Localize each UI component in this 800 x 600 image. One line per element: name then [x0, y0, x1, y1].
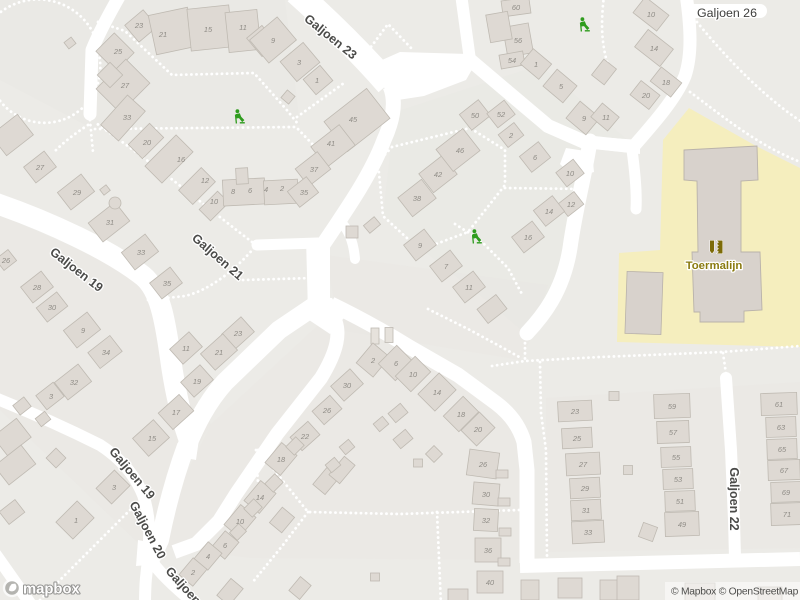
svg-text:1: 1: [315, 76, 319, 85]
svg-text:14: 14: [256, 493, 264, 502]
svg-text:19: 19: [193, 377, 201, 386]
svg-text:16: 16: [177, 155, 186, 164]
svg-text:25: 25: [572, 434, 582, 443]
svg-text:32: 32: [482, 516, 490, 525]
svg-text:31: 31: [106, 218, 114, 227]
svg-text:14: 14: [650, 44, 658, 53]
svg-text:11: 11: [602, 113, 610, 122]
svg-text:60: 60: [512, 3, 521, 12]
svg-text:29: 29: [72, 188, 81, 197]
svg-text:41: 41: [327, 139, 335, 148]
svg-text:49: 49: [678, 520, 686, 529]
svg-text:52: 52: [497, 110, 505, 119]
svg-text:30: 30: [48, 303, 57, 312]
svg-text:26: 26: [478, 460, 488, 469]
svg-text:23: 23: [570, 407, 580, 416]
svg-text:20: 20: [142, 138, 152, 147]
svg-text:Toermalijn: Toermalijn: [686, 260, 743, 272]
svg-text:27: 27: [35, 163, 45, 172]
svg-text:10: 10: [236, 517, 245, 526]
svg-text:51: 51: [676, 497, 684, 506]
svg-text:69: 69: [782, 488, 790, 497]
svg-text:27: 27: [578, 460, 588, 469]
svg-text:4: 4: [264, 185, 268, 194]
svg-text:20: 20: [473, 425, 483, 434]
svg-text:56: 56: [514, 36, 523, 45]
svg-text:10: 10: [210, 197, 219, 206]
svg-text:35: 35: [163, 279, 172, 288]
svg-text:35: 35: [300, 188, 309, 197]
svg-text:23: 23: [134, 21, 144, 30]
svg-text:53: 53: [674, 475, 683, 484]
svg-text:2: 2: [279, 184, 284, 193]
svg-text:18: 18: [662, 78, 671, 87]
svg-text:40: 40: [486, 578, 495, 587]
svg-text:2: 2: [508, 131, 513, 140]
svg-text:26: 26: [322, 406, 332, 415]
svg-text:57: 57: [669, 428, 678, 437]
svg-text:1: 1: [74, 516, 78, 525]
svg-text:Galjoen 22: Galjoen 22: [727, 467, 741, 530]
svg-text:11: 11: [239, 23, 247, 32]
svg-text:63: 63: [777, 423, 786, 432]
svg-text:71: 71: [783, 510, 791, 519]
svg-text:14: 14: [433, 388, 441, 397]
svg-text:29: 29: [580, 484, 589, 493]
svg-text:27: 27: [120, 81, 130, 90]
svg-text:4: 4: [206, 552, 210, 561]
svg-text:2: 2: [190, 568, 195, 577]
svg-text:38: 38: [413, 194, 422, 203]
svg-text:21: 21: [158, 30, 167, 39]
svg-text:30: 30: [482, 490, 491, 499]
svg-text:33: 33: [137, 248, 146, 257]
svg-text:46: 46: [456, 146, 465, 155]
svg-text:36: 36: [484, 546, 493, 555]
svg-text:42: 42: [434, 170, 442, 179]
svg-text:9: 9: [271, 36, 275, 45]
svg-text:31: 31: [582, 506, 590, 515]
svg-text:9: 9: [582, 114, 586, 123]
svg-text:10: 10: [647, 10, 656, 19]
svg-text:37: 37: [310, 165, 319, 174]
svg-text:20: 20: [641, 91, 651, 100]
svg-text:15: 15: [204, 25, 213, 34]
svg-text:30: 30: [343, 381, 352, 390]
svg-text:23: 23: [233, 329, 243, 338]
svg-text:Galjoen 26: Galjoen 26: [697, 6, 757, 20]
svg-text:45: 45: [349, 115, 358, 124]
svg-text:21: 21: [214, 348, 223, 357]
svg-text:11: 11: [182, 344, 190, 353]
svg-text:55: 55: [672, 453, 681, 462]
svg-text:61: 61: [775, 400, 783, 409]
svg-text:15: 15: [148, 434, 157, 443]
svg-text:67: 67: [780, 466, 789, 475]
svg-text:50: 50: [471, 111, 480, 120]
svg-text:© Mapbox © OpenStreetMap: © Mapbox © OpenStreetMap: [671, 587, 799, 598]
svg-text:10: 10: [409, 370, 418, 379]
svg-text:14: 14: [545, 207, 553, 216]
svg-text:11: 11: [465, 283, 473, 292]
svg-text:10: 10: [566, 169, 575, 178]
svg-text:22: 22: [300, 432, 309, 441]
svg-text:33: 33: [584, 528, 593, 537]
svg-text:9: 9: [418, 241, 422, 250]
svg-text:26: 26: [1, 256, 11, 265]
svg-text:25: 25: [113, 47, 123, 56]
svg-text:59: 59: [668, 402, 676, 411]
svg-text:17: 17: [172, 408, 181, 417]
svg-text:12: 12: [201, 176, 209, 185]
svg-text:65: 65: [778, 445, 787, 454]
svg-text:28: 28: [32, 283, 42, 292]
svg-text:9: 9: [81, 326, 85, 335]
svg-text:18: 18: [277, 455, 286, 464]
svg-text:32: 32: [70, 378, 78, 387]
svg-text:1: 1: [534, 60, 538, 69]
svg-text:2: 2: [370, 356, 375, 365]
svg-text:34: 34: [102, 348, 110, 357]
svg-text:12: 12: [567, 200, 575, 209]
svg-text:33: 33: [123, 113, 132, 122]
svg-text:18: 18: [457, 410, 466, 419]
svg-text:mapbox: mapbox: [23, 582, 81, 598]
svg-text:16: 16: [524, 233, 533, 242]
svg-text:54: 54: [508, 56, 516, 65]
